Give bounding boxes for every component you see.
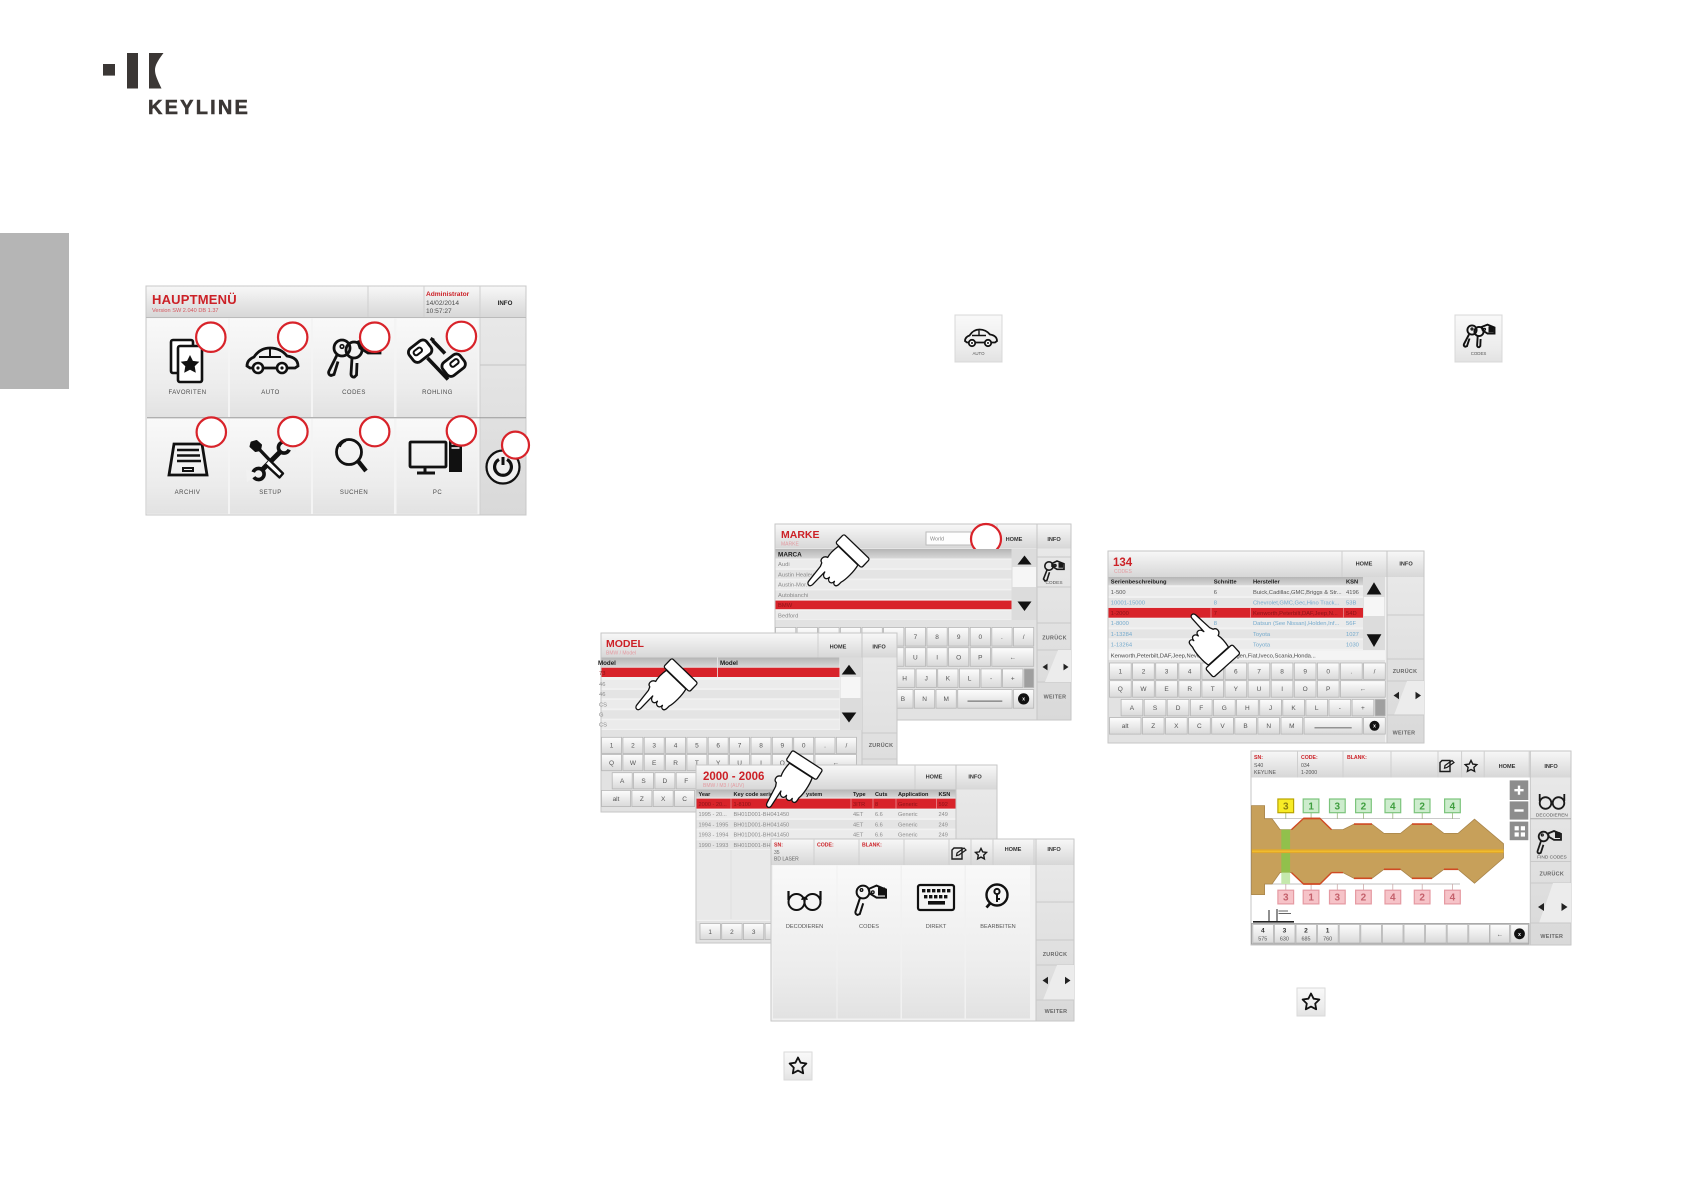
svg-text:H: H xyxy=(902,676,907,683)
svg-text:630: 630 xyxy=(1280,937,1289,943)
svg-text:1-8000: 1-8000 xyxy=(1111,621,1129,627)
svg-text:8: 8 xyxy=(875,802,878,808)
svg-text:KSN: KSN xyxy=(939,792,951,798)
svg-text:760: 760 xyxy=(1323,937,1332,943)
svg-text:KEYLINE: KEYLINE xyxy=(148,97,250,119)
svg-text:1993 - 1994: 1993 - 1994 xyxy=(699,833,729,839)
svg-text:World: World xyxy=(930,537,944,543)
svg-text:R: R xyxy=(673,760,678,767)
svg-text:1027: 1027 xyxy=(1346,632,1359,638)
svg-text:1-13264: 1-13264 xyxy=(1111,643,1133,649)
svg-text:Generic: Generic xyxy=(898,833,918,839)
svg-text:INFO: INFO xyxy=(1047,847,1061,853)
svg-text:N: N xyxy=(922,696,927,703)
svg-text:T: T xyxy=(1211,686,1215,693)
svg-text:S: S xyxy=(1153,705,1158,712)
svg-text:S40: S40 xyxy=(1254,763,1263,769)
svg-text:C: C xyxy=(1197,723,1202,730)
svg-text:I: I xyxy=(936,654,938,661)
svg-text:CODES: CODES xyxy=(1045,580,1062,586)
svg-text:ARCHIV: ARCHIV xyxy=(175,490,201,496)
svg-text:1994 - 1995: 1994 - 1995 xyxy=(699,822,729,828)
svg-text:WEITER: WEITER xyxy=(1393,731,1416,737)
svg-text:DECODIEREN: DECODIEREN xyxy=(1536,813,1569,819)
svg-text:INFO: INFO xyxy=(872,645,886,651)
svg-text:6: 6 xyxy=(1234,669,1238,676)
svg-text:ZURÜCK: ZURÜCK xyxy=(1043,951,1068,958)
svg-text:Serienbeschreibung: Serienbeschreibung xyxy=(1111,580,1167,586)
svg-text:SUCHEN: SUCHEN xyxy=(340,490,368,496)
svg-text:AUTO: AUTO xyxy=(972,351,985,356)
svg-text:BMW: BMW xyxy=(778,603,793,609)
svg-text:P: P xyxy=(1326,686,1330,693)
svg-text:CODE:: CODE: xyxy=(817,843,834,849)
svg-text:FIND CODES: FIND CODES xyxy=(1537,855,1567,861)
svg-text:Bedford: Bedford xyxy=(778,613,798,619)
svg-text:Type: Type xyxy=(853,792,866,798)
svg-text:BD LASER: BD LASER xyxy=(774,857,799,863)
svg-text:3: 3 xyxy=(1283,893,1289,904)
svg-text:x: x xyxy=(1022,697,1025,703)
svg-text:J: J xyxy=(925,676,928,683)
svg-text:PC: PC xyxy=(433,490,443,496)
svg-text:BEARBEITEN: BEARBEITEN xyxy=(980,924,1015,930)
svg-text:/: / xyxy=(845,743,847,750)
svg-text:K: K xyxy=(946,676,951,683)
svg-text:S: S xyxy=(641,778,646,785)
svg-text:1-8100: 1-8100 xyxy=(734,802,751,808)
svg-text:Toyota: Toyota xyxy=(1253,643,1271,649)
svg-text:DIREKT: DIREKT xyxy=(926,924,947,930)
svg-text:WEITER: WEITER xyxy=(1045,1009,1068,1015)
svg-text:CODES: CODES xyxy=(1114,569,1132,575)
svg-text:←: ← xyxy=(1496,931,1503,938)
svg-text:1: 1 xyxy=(708,929,712,936)
svg-text:2: 2 xyxy=(730,929,734,936)
svg-text:SETUP: SETUP xyxy=(259,490,282,496)
svg-text:X: X xyxy=(1174,723,1179,730)
svg-text:Generic: Generic xyxy=(898,802,918,808)
svg-text:ZURÜCK: ZURÜCK xyxy=(869,742,894,749)
svg-text:6.6: 6.6 xyxy=(875,812,883,818)
svg-text:034: 034 xyxy=(1301,763,1310,769)
svg-text:alt: alt xyxy=(613,796,620,803)
svg-text:CODES: CODES xyxy=(1471,351,1487,356)
svg-text:1: 1 xyxy=(1118,669,1122,676)
svg-text:HOME: HOME xyxy=(1499,764,1516,770)
svg-text:HOME: HOME xyxy=(1006,537,1023,543)
svg-text:Model: Model xyxy=(598,660,616,667)
svg-text:7: 7 xyxy=(738,743,742,750)
svg-text:WEITER: WEITER xyxy=(1540,934,1563,940)
svg-text:Model: Model xyxy=(720,660,738,667)
svg-text:1995 - 20...: 1995 - 20... xyxy=(699,812,728,818)
svg-text:Y: Y xyxy=(1234,686,1239,693)
svg-text:Q: Q xyxy=(1118,686,1123,693)
svg-text:CODES: CODES xyxy=(859,924,879,930)
svg-text:3: 3 xyxy=(752,929,756,936)
svg-text:46: 46 xyxy=(599,692,605,698)
svg-text:8: 8 xyxy=(1280,669,1284,676)
svg-text:R: R xyxy=(1187,686,1192,693)
svg-text:ROHLING: ROHLING xyxy=(422,390,453,396)
svg-text:←: ← xyxy=(1360,686,1367,693)
svg-text:D: D xyxy=(1176,705,1181,712)
svg-text:ZURÜCK: ZURÜCK xyxy=(1540,871,1565,878)
svg-text:HOME: HOME xyxy=(1356,562,1373,568)
svg-text:Z: Z xyxy=(640,796,644,803)
svg-text:H: H xyxy=(1245,705,1250,712)
svg-text:.: . xyxy=(1350,669,1352,676)
svg-text:WEITER: WEITER xyxy=(1044,695,1067,701)
svg-text:1-2000: 1-2000 xyxy=(1111,611,1129,617)
svg-text:1: 1 xyxy=(610,743,614,750)
svg-text:INFO: INFO xyxy=(1399,562,1413,568)
svg-text:x: x xyxy=(1518,932,1521,938)
svg-text:BLANK:: BLANK: xyxy=(862,843,882,849)
svg-text:INFO: INFO xyxy=(498,300,513,307)
svg-text:HAUPTMENÜ: HAUPTMENÜ xyxy=(152,292,237,307)
svg-text:N: N xyxy=(1266,723,1271,730)
svg-text:10001-15000: 10001-15000 xyxy=(1111,601,1145,607)
svg-text:1-13284: 1-13284 xyxy=(1111,632,1133,638)
svg-text:1-500: 1-500 xyxy=(1111,590,1126,596)
svg-text:O: O xyxy=(956,654,961,661)
svg-text:A: A xyxy=(1130,705,1135,712)
svg-text:F: F xyxy=(1199,705,1203,712)
svg-text:E: E xyxy=(1164,686,1169,693)
svg-text:x: x xyxy=(1373,724,1376,730)
svg-text:249: 249 xyxy=(939,812,948,818)
svg-text:3: 3 xyxy=(1335,893,1341,904)
svg-text:L: L xyxy=(1315,705,1319,712)
svg-text:7: 7 xyxy=(1257,669,1261,676)
svg-text:134: 134 xyxy=(1113,557,1133,569)
svg-text:6: 6 xyxy=(716,743,720,750)
svg-text:4ET: 4ET xyxy=(853,833,864,839)
svg-text:35: 35 xyxy=(774,850,780,856)
svg-text:/: / xyxy=(1023,634,1025,641)
svg-text:3: 3 xyxy=(1283,928,1287,935)
svg-text:0: 0 xyxy=(978,634,982,641)
svg-text:K: K xyxy=(1291,705,1296,712)
svg-text:4ET: 4ET xyxy=(853,822,864,828)
svg-text:4: 4 xyxy=(1390,893,1396,904)
svg-text:4ET: 4ET xyxy=(853,812,864,818)
svg-text:592: 592 xyxy=(939,802,948,808)
svg-text:54D: 54D xyxy=(1346,611,1357,617)
svg-text:M: M xyxy=(1289,723,1294,730)
svg-text:HOME: HOME xyxy=(926,775,943,781)
svg-text:B: B xyxy=(901,696,905,703)
svg-text:Administrator: Administrator xyxy=(426,291,470,298)
svg-text:KSN: KSN xyxy=(1346,580,1358,586)
svg-text:Generic: Generic xyxy=(898,812,918,818)
svg-text:V: V xyxy=(1220,723,1225,730)
svg-text:I: I xyxy=(1281,686,1283,693)
svg-text:2: 2 xyxy=(1142,669,1146,676)
svg-text:Q: Q xyxy=(609,760,614,767)
svg-text:8: 8 xyxy=(935,634,939,641)
svg-text:6.6: 6.6 xyxy=(875,833,883,839)
svg-text:KEYLINE: KEYLINE xyxy=(1254,770,1276,776)
svg-text:2: 2 xyxy=(1419,802,1425,813)
svg-text:4: 4 xyxy=(1450,893,1456,904)
svg-text:W: W xyxy=(630,760,637,767)
svg-text:4196: 4196 xyxy=(1346,590,1359,596)
svg-text:1990 - 1993: 1990 - 1993 xyxy=(699,843,729,849)
svg-text:685: 685 xyxy=(1302,937,1311,943)
svg-text:B: B xyxy=(1243,723,1247,730)
svg-text:U: U xyxy=(913,654,918,661)
svg-text:DECODIEREN: DECODIEREN xyxy=(786,924,823,930)
svg-text:Generic: Generic xyxy=(898,822,918,828)
svg-text:G: G xyxy=(599,713,604,719)
svg-text:FAVORITEN: FAVORITEN xyxy=(168,390,206,396)
svg-text:E: E xyxy=(652,760,657,767)
svg-text:SN:: SN: xyxy=(1254,755,1263,761)
svg-text:249: 249 xyxy=(939,822,948,828)
svg-text:-: - xyxy=(1339,705,1341,712)
svg-text:Version SW 2.040 DB 1.37: Version SW 2.040 DB 1.37 xyxy=(152,308,219,314)
svg-text:2000 - 20...: 2000 - 20... xyxy=(699,802,728,808)
svg-text:2: 2 xyxy=(1361,893,1367,904)
svg-text:A: A xyxy=(620,778,625,785)
svg-text:3: 3 xyxy=(1165,669,1169,676)
svg-text:ZURÜCK: ZURÜCK xyxy=(1393,668,1418,675)
svg-text:+: + xyxy=(1361,705,1365,712)
svg-text:X: X xyxy=(661,796,666,803)
svg-text:249: 249 xyxy=(939,833,948,839)
svg-text:C: C xyxy=(682,796,687,803)
svg-text:SN:: SN: xyxy=(774,843,783,849)
svg-text:46: 46 xyxy=(599,682,605,688)
svg-text:D: D xyxy=(663,778,668,785)
svg-text:1030: 1030 xyxy=(1346,643,1359,649)
svg-text:INFO: INFO xyxy=(1047,537,1061,543)
svg-text:U: U xyxy=(1257,686,1262,693)
svg-text:←: ← xyxy=(1010,654,1017,661)
svg-text:alt: alt xyxy=(1122,723,1129,730)
svg-text:BMW / M3 / (AUV): BMW / M3 / (AUV) xyxy=(703,783,744,789)
svg-text:7: 7 xyxy=(914,634,918,641)
svg-text:Cuts: Cuts xyxy=(875,792,887,798)
svg-text:575: 575 xyxy=(1258,937,1267,943)
svg-text:Z: Z xyxy=(1151,723,1155,730)
svg-text:2: 2 xyxy=(1419,893,1425,904)
svg-text:2: 2 xyxy=(1304,928,1308,935)
svg-text:3: 3 xyxy=(652,743,656,750)
svg-text:BLANK:: BLANK: xyxy=(1347,755,1367,761)
svg-text:56F: 56F xyxy=(1346,621,1356,627)
svg-text:HOME: HOME xyxy=(1005,847,1022,853)
svg-text:M: M xyxy=(943,696,948,703)
svg-text:INFO: INFO xyxy=(1544,764,1558,770)
svg-text:3: 3 xyxy=(1283,802,1289,813)
svg-text:ZURÜCK: ZURÜCK xyxy=(1042,635,1067,642)
svg-text:CODE:: CODE: xyxy=(1301,755,1318,761)
svg-text:INFO: INFO xyxy=(968,775,982,781)
svg-text:P: P xyxy=(978,654,982,661)
svg-text:14/02/2014: 14/02/2014 xyxy=(426,300,459,307)
svg-text:O: O xyxy=(1303,686,1308,693)
svg-text:Audi: Audi xyxy=(778,562,790,568)
svg-text:+: + xyxy=(1011,676,1015,683)
svg-text:4: 4 xyxy=(1390,802,1396,813)
svg-text:1: 1 xyxy=(1308,893,1314,904)
svg-text:1: 1 xyxy=(1326,928,1330,935)
svg-text:CS: CS xyxy=(599,702,607,708)
svg-text:4: 4 xyxy=(1450,802,1456,813)
svg-text:L: L xyxy=(968,676,972,683)
svg-text:53B: 53B xyxy=(1346,601,1356,607)
svg-text:F: F xyxy=(684,778,688,785)
svg-text:9: 9 xyxy=(1303,669,1307,676)
svg-text:3ITR: 3ITR xyxy=(853,802,865,808)
svg-text:G: G xyxy=(1222,705,1227,712)
svg-text:10:57:27: 10:57:27 xyxy=(426,308,452,315)
svg-text:1: 1 xyxy=(1308,802,1314,813)
svg-text:2: 2 xyxy=(631,743,635,750)
svg-text:HOME: HOME xyxy=(830,645,847,651)
svg-text:6.6: 6.6 xyxy=(875,822,883,828)
svg-text:CS: CS xyxy=(599,723,607,729)
svg-text:5: 5 xyxy=(695,743,699,750)
svg-text:4: 4 xyxy=(674,743,678,750)
svg-text:.: . xyxy=(1001,634,1003,641)
svg-text:/: / xyxy=(1374,669,1376,676)
svg-text:AUTO: AUTO xyxy=(261,390,280,396)
svg-text:9: 9 xyxy=(957,634,961,641)
svg-text:Year: Year xyxy=(699,792,712,798)
svg-text:Application: Application xyxy=(898,792,929,798)
svg-text:0: 0 xyxy=(1326,669,1330,676)
svg-text:73: 73 xyxy=(599,671,605,677)
svg-text:CODES: CODES xyxy=(342,390,366,396)
svg-text:1-2000: 1-2000 xyxy=(1301,770,1317,776)
svg-text:W: W xyxy=(1140,686,1147,693)
svg-text:J: J xyxy=(1269,705,1272,712)
svg-text:4: 4 xyxy=(1188,669,1192,676)
svg-text:-: - xyxy=(990,676,992,683)
svg-text:3: 3 xyxy=(1335,802,1341,813)
svg-text:4: 4 xyxy=(1261,928,1265,935)
svg-text:2: 2 xyxy=(1361,802,1367,813)
